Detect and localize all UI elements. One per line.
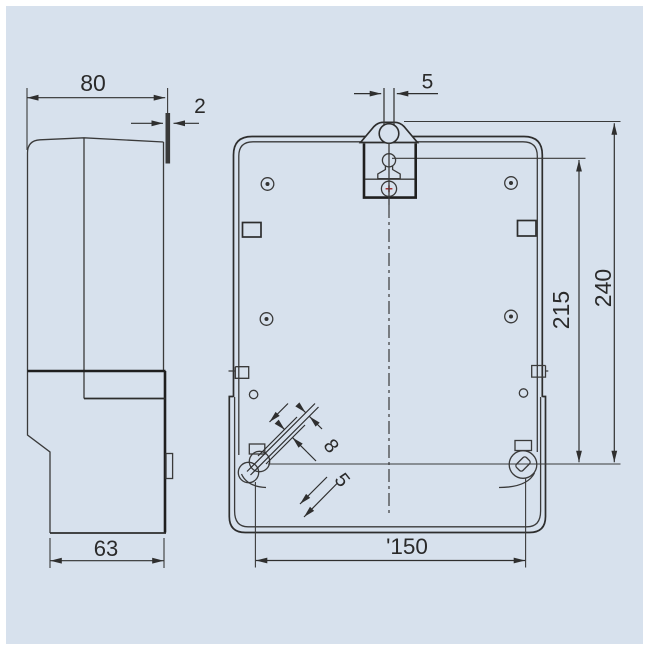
dim-80-label: 80 xyxy=(80,70,106,96)
dim-2-label: 2 xyxy=(194,95,206,118)
dim-5-top-label: 5 xyxy=(422,71,434,94)
side-hanger-tab xyxy=(166,113,171,164)
dim-150-label: '150 xyxy=(386,534,428,559)
dim-240-label: 240 xyxy=(590,269,616,307)
hanging-hole xyxy=(379,124,399,144)
drawing-canvas: 80 2 63 xyxy=(0,0,650,650)
dim-63-label: 63 xyxy=(94,536,118,561)
dim-215-label: 215 xyxy=(548,291,574,329)
technical-drawing: 80 2 63 xyxy=(0,0,650,650)
